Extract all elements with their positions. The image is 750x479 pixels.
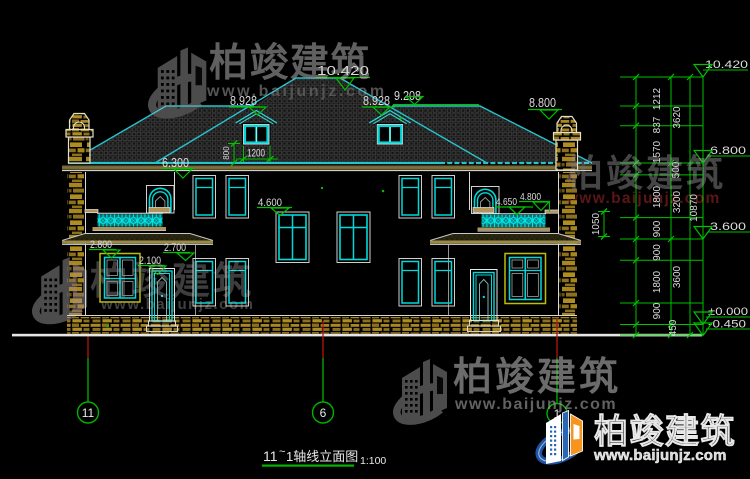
svg-text:3600: 3600 xyxy=(672,265,683,288)
svg-text:3.600: 3.600 xyxy=(710,221,746,233)
svg-text:柏竣建筑: 柏竣建筑 xyxy=(594,412,736,451)
svg-text:3620: 3620 xyxy=(672,106,683,129)
svg-text:800: 800 xyxy=(222,146,231,160)
svg-text:1800: 1800 xyxy=(652,270,663,293)
svg-text:900: 900 xyxy=(652,220,663,237)
svg-text:1200: 1200 xyxy=(247,148,265,160)
svg-text:900: 900 xyxy=(652,244,663,261)
svg-text:1轴线立面图: 1轴线立面图 xyxy=(286,449,358,464)
svg-text:1:100: 1:100 xyxy=(360,455,386,467)
svg-text:柏竣建筑: 柏竣建筑 xyxy=(209,42,371,85)
svg-text:1212: 1212 xyxy=(652,87,663,110)
svg-text:11: 11 xyxy=(263,448,278,464)
svg-text:900: 900 xyxy=(652,302,663,319)
svg-text:±0.000: ±0.000 xyxy=(708,306,748,318)
svg-text:www.baijunjz.com: www.baijunjz.com xyxy=(100,296,254,313)
svg-text:www.baijunjz.com: www.baijunjz.com xyxy=(206,83,387,100)
svg-text:4.650: 4.650 xyxy=(496,196,517,208)
svg-text:450: 450 xyxy=(668,319,679,336)
svg-text:www.baijunjz.com: www.baijunjz.com xyxy=(565,190,721,207)
svg-text:11: 11 xyxy=(82,406,95,420)
svg-text:1050: 1050 xyxy=(591,212,602,235)
svg-text:8.800: 8.800 xyxy=(529,96,556,110)
svg-text:www.baijunjz.com: www.baijunjz.com xyxy=(454,396,617,413)
svg-text:6: 6 xyxy=(320,406,327,420)
svg-text:柏竣建筑: 柏竣建筑 xyxy=(566,152,726,194)
svg-text:www.baijunjz.com: www.baijunjz.com xyxy=(593,447,727,464)
svg-text:~: ~ xyxy=(279,446,285,458)
svg-text:837: 837 xyxy=(652,116,663,133)
svg-text:柏竣建筑: 柏竣建筑 xyxy=(453,356,621,399)
